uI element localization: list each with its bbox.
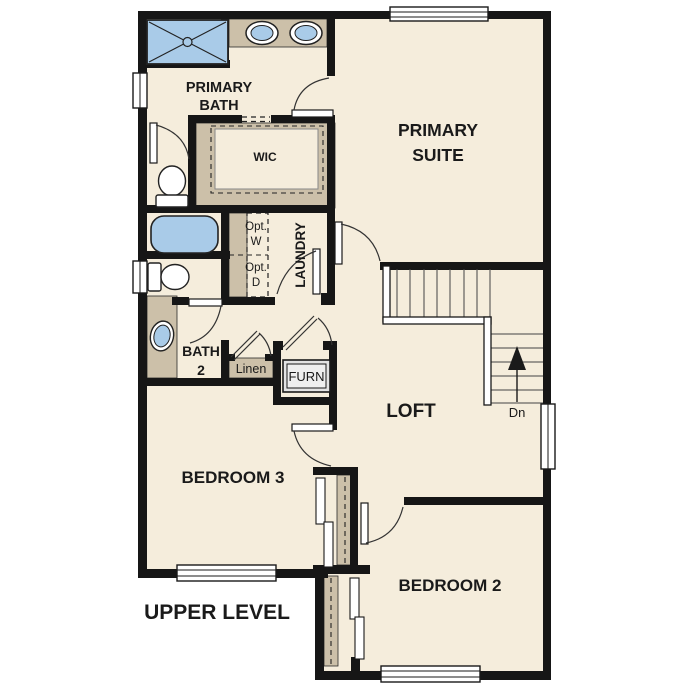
stair-railing-right — [484, 317, 491, 405]
window-bath2-left — [133, 261, 147, 293]
toilet-fixture-bath2 — [148, 263, 189, 291]
wall-outer-mid-vertical — [315, 569, 324, 680]
wall-furnace-bottom — [273, 397, 337, 405]
floor-plan-drawing: PRIMARY BATH PRIMARY SUITE WIC LAUNDRY O… — [0, 0, 687, 687]
stairs-down-label: Dn — [509, 405, 526, 420]
bathtub-fixture — [151, 216, 218, 253]
wall-linen-nub-left — [227, 354, 235, 361]
stair-railing-bottom — [383, 317, 491, 324]
window-primary-bath-left — [133, 73, 147, 108]
wall-furnace-nub-left — [273, 341, 283, 350]
wall-laundry-bottom — [221, 297, 275, 305]
bedroom3-label: BEDROOM 3 — [182, 468, 285, 487]
wall-laundry-corner — [321, 293, 335, 305]
wall-closet-mid — [313, 565, 370, 574]
linen-label: Linen — [236, 362, 267, 376]
toilet-fixture-primary — [156, 166, 188, 207]
bath2-label-line1: BATH — [182, 343, 220, 359]
wall-furnace-left — [273, 348, 281, 405]
plan-title: UPPER LEVEL — [144, 601, 290, 624]
primary-suite-label-line2: SUITE — [412, 145, 464, 165]
floor-plan-page: PRIMARY BATH PRIMARY SUITE WIC LAUNDRY O… — [0, 0, 687, 687]
laundry-label: LAUNDRY — [293, 222, 308, 288]
furnace-label: FURN — [288, 369, 324, 384]
window-bedroom3-bottom — [177, 565, 276, 581]
stair-railing-left — [383, 266, 390, 322]
wall-furnace-nub-right — [323, 341, 337, 350]
wall-outer-right — [543, 11, 551, 680]
primary-suite-label-line1: PRIMARY — [398, 120, 478, 140]
opt-dryer-label-line2: D — [252, 277, 260, 289]
opt-dryer-label-line1: Opt. — [245, 262, 267, 274]
wall-outer-top — [138, 11, 551, 19]
opt-washer-label-line2: W — [251, 236, 262, 248]
window-bedroom2-bottom — [381, 666, 480, 682]
wic-label: WIC — [253, 150, 277, 164]
wall-wc-divider — [188, 115, 196, 213]
wall-linen-nub-right — [265, 354, 274, 361]
wall-suite-stair — [380, 262, 543, 270]
bath2-label-line2: 2 — [197, 362, 205, 378]
wall-bedroom2-top — [404, 497, 543, 505]
primary-bath-label-line2: BATH — [199, 98, 238, 114]
wall-closet3-right — [350, 467, 358, 572]
shower-fixture — [147, 20, 228, 64]
loft-label: LOFT — [386, 401, 436, 422]
opt-washer-label-line1: Opt. — [245, 221, 267, 233]
wall-bath-suite-upper — [327, 19, 335, 76]
window-stair-right — [541, 404, 555, 469]
window-primary-suite-top — [390, 7, 488, 21]
wall-bath2-top-stub — [172, 297, 189, 305]
bedroom2-label: BEDROOM 2 — [399, 576, 502, 595]
primary-bath-label-line1: PRIMARY — [186, 80, 253, 96]
wall-bedroom3-top — [138, 378, 281, 386]
wall-bath2-laundry — [221, 205, 229, 300]
wall-wic-top-left — [188, 115, 242, 123]
